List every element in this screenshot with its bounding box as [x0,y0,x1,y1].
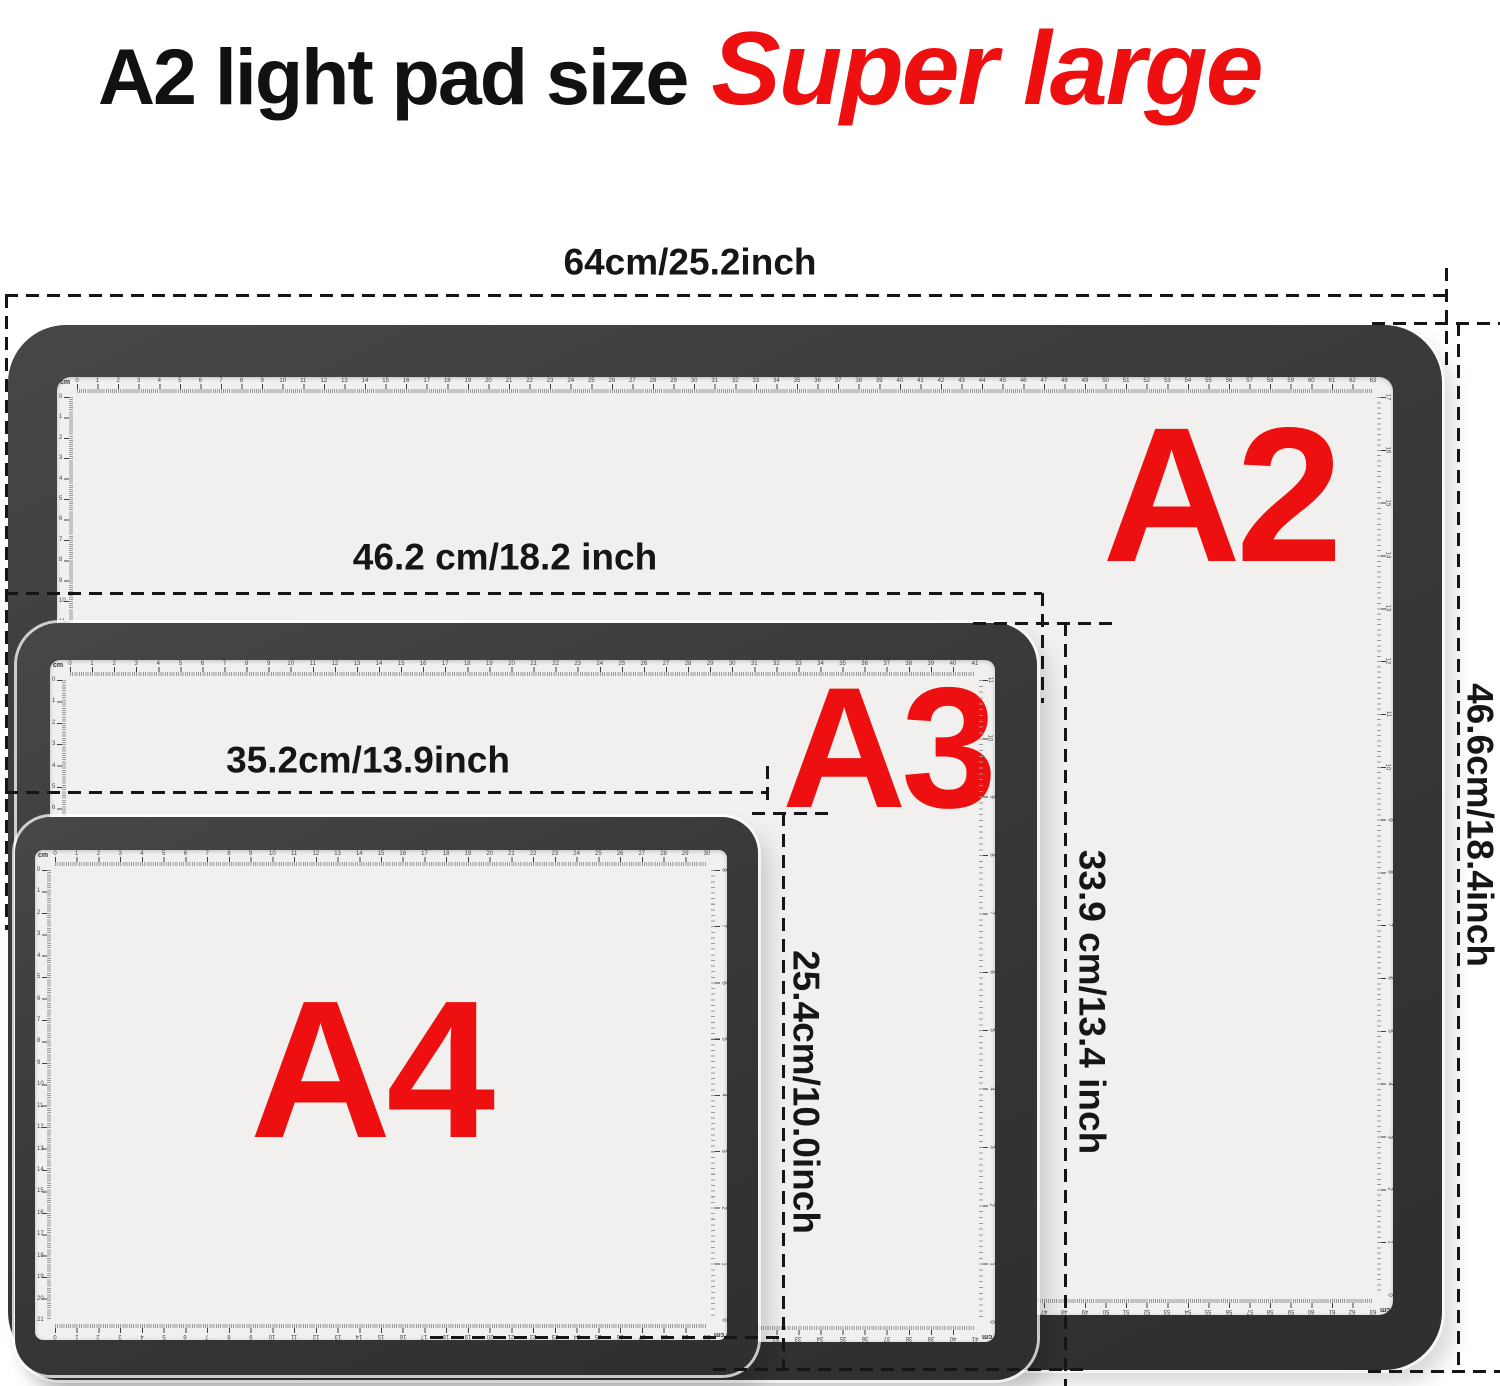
ruler-number: 47 [1041,378,1048,384]
ruler-number: 13 [1385,605,1391,612]
ruler-number: 8 [59,557,62,563]
ruler-number: 16 [420,661,427,667]
ruler-number: 2 [97,851,100,857]
ruler-number: 22 [530,1333,537,1339]
ruler-number: 1 [75,1333,78,1339]
ruler-number: 10 [287,661,294,667]
ruler-number: 7 [988,912,994,915]
ruler-number: 33 [753,378,760,384]
ruler-unit-label: cm [982,1333,992,1340]
ruler-number: 21 [37,1317,44,1323]
ruler-unit-label: cm [714,1331,724,1338]
a4-ruler-right: 876543210 [711,850,727,1340]
ruler-number: 25 [595,1333,602,1339]
ruler-number: 5 [162,1333,165,1339]
ruler-number: 2 [59,435,62,441]
ruler-number: 3 [135,661,138,667]
ruler-number: 0 [53,851,56,857]
ruler-number: 41 [972,1335,979,1341]
ruler-number: 26 [617,851,624,857]
a4-ruler-ticks [55,857,707,866]
ruler-number: 4 [59,476,62,482]
ruler-number: 21 [506,378,513,384]
ruler-number: 6 [720,981,726,984]
ruler-number: 53 [1164,1308,1171,1314]
a4-pad-surface: A4 0123456789101112131415161718192021222… [35,850,727,1340]
ruler-number: 1 [988,1262,994,1265]
ruler-number: 8 [245,661,248,667]
ruler-number: 13 [37,1146,44,1152]
ruler-number: 8 [1386,871,1392,874]
ruler-number: 20 [485,378,492,384]
a3-ruler-ticks [979,680,988,1322]
ruler-number: 19 [465,378,472,384]
ruler-number: 17 [442,661,449,667]
ruler-number: 11 [291,851,297,857]
a4-ruler-bottom: 0123456789101112131415161718192021222324… [35,1324,727,1340]
ruler-number: 1 [1386,1241,1392,1244]
ruler-number: 4 [140,1333,143,1339]
ruler-number: 48 [1061,378,1068,384]
ruler-number: 15 [378,851,385,857]
ruler-number: 7 [720,925,726,928]
a2-ruler-ticks [77,384,1373,393]
ruler-number: 63 [1370,1308,1377,1314]
ruler-number: 13 [334,1333,341,1339]
ruler-number: 2 [97,1333,100,1339]
ruler-number: 37 [883,661,890,667]
ruler-number: 0 [1386,1293,1392,1296]
ruler-number: 28 [650,378,657,384]
ruler-number: 57 [1246,378,1253,384]
ruler-number: 50 [1102,1308,1109,1314]
ruler-number: 60 [1308,1308,1315,1314]
ruler-number: 30 [704,851,711,857]
ruler-number: 39 [928,1335,935,1341]
ruler-number: 45 [999,378,1006,384]
ruler-number: 13 [334,851,341,857]
ruler-number: 34 [773,378,780,384]
dim-tick-a2-right-top [1445,268,1448,370]
ruler-number: 62 [1349,1308,1356,1314]
ruler-number: 44 [979,378,986,384]
ruler-number: 41 [917,378,924,384]
ruler-number: 38 [905,1335,912,1341]
ruler-number: 27 [638,851,645,857]
ruler-number: 20 [508,661,515,667]
ruler-number: 40 [950,1335,957,1341]
ruler-number: 41 [972,661,979,667]
ruler-number: 62 [1349,378,1356,384]
ruler-number: 42 [938,378,945,384]
ruler-number: 10 [37,1081,44,1087]
ruler-number: 9 [267,661,270,667]
ruler-number: 24 [573,851,580,857]
ruler-number: 54 [1185,378,1192,384]
ruler-number: 36 [861,661,868,667]
ruler-number: 10 [279,378,286,384]
ruler-number: 59 [1287,1308,1294,1314]
ruler-number: 7 [37,1017,40,1023]
ruler-number: 20 [486,1333,493,1339]
ruler-number: 35 [839,1335,846,1341]
ruler-number: 12 [321,378,328,384]
ruler-number: 18 [464,661,471,667]
a3-size-label: A3 [782,662,992,834]
ruler-number: 11 [300,378,306,384]
ruler-number: 0 [37,867,40,873]
ruler-number: 19 [486,661,493,667]
ruler-number: 0 [52,677,55,683]
a2-ruler-right: 17161514131211109876543210 [1377,377,1393,1315]
ruler-number: 6 [37,996,40,1002]
ruler-number: 2 [37,910,40,916]
ruler-number: 14 [1385,552,1391,559]
ruler-number: 5 [162,851,165,857]
ruler-number: 10 [59,598,66,604]
ruler-unit-label: cm [53,662,63,669]
ruler-number: 34 [817,661,824,667]
ruler-number: 6 [988,970,994,973]
ruler-number: 21 [508,1333,515,1339]
ruler-number: 54 [1185,1308,1192,1314]
ruler-number: 23 [574,661,581,667]
ruler-number: 11 [1385,711,1391,717]
ruler-number: 24 [573,1333,580,1339]
ruler-number: 15 [1385,499,1391,506]
ruler-number: 5 [988,1029,994,1032]
ruler-number: 18 [443,1333,450,1339]
ruler-number: 17 [421,1333,428,1339]
ruler-number: 8 [227,851,230,857]
ruler-number: 56 [1226,1308,1233,1314]
ruler-number: 51 [1123,1308,1130,1314]
ruler-number: 43 [958,378,965,384]
a3-ruler-right: 11109876543210 [979,660,995,1342]
ruler-unit-label: cm [60,379,70,386]
ruler-number: 25 [588,378,595,384]
ruler-number: 0 [68,661,71,667]
ruler-number: 18 [443,851,450,857]
ruler-number: 35 [839,661,846,667]
ruler-number: 25 [595,851,602,857]
ruler-number: 11 [987,677,993,683]
ruler-number: 6 [184,851,187,857]
ruler-number: 37 [883,1335,890,1341]
ruler-number: 3 [59,455,62,461]
ruler-number: 11 [310,661,316,667]
ruler-number: 30 [729,661,736,667]
ruler-number: 16 [1385,446,1391,453]
ruler-number: 47 [1041,1308,1048,1314]
ruler-number: 15 [382,378,389,384]
ruler-number: 2 [52,720,55,726]
ruler-number: 3 [988,1145,994,1148]
ruler-number: 28 [660,1333,667,1339]
ruler-number: 0 [988,1320,994,1323]
ruler-number: 29 [682,851,689,857]
ruler-number: 30 [704,1333,711,1339]
ruler-number: 11 [291,1333,297,1339]
ruler-number: 0 [53,1333,56,1339]
ruler-number: 22 [552,661,559,667]
ruler-number: 2 [988,1204,994,1207]
ruler-number: 38 [855,378,862,384]
ruler-number: 14 [376,661,383,667]
title-product: A2 light pad size [98,31,687,123]
ruler-number: 12 [37,1124,44,1130]
ruler-number: 63 [1370,378,1377,384]
dim-line-a2-height [1457,323,1460,1371]
ruler-number: 9 [249,1333,252,1339]
ruler-number: 49 [1082,1308,1089,1314]
a4-size-label: A4 [250,972,491,1168]
page-title: A2 light pad size Super large [98,10,1262,129]
ruler-number: 24 [567,378,574,384]
ruler-number: 25 [618,661,625,667]
ruler-number: 46 [1020,378,1027,384]
ruler-number: 3 [37,931,40,937]
ruler-number: 33 [795,1335,802,1341]
ruler-number: 60 [1308,378,1315,384]
ruler-number: 8 [720,868,726,871]
a2-ruler-top: 0123456789101112131415161718192021222324… [57,377,1393,393]
ruler-number: 8 [988,853,994,856]
ruler-number: 27 [638,1333,645,1339]
ruler-number: 10 [269,851,276,857]
ruler-number: 3 [1386,1135,1392,1138]
ruler-number: 5 [52,784,55,790]
ruler-number: 14 [356,851,363,857]
ruler-number: 6 [52,805,55,811]
ruler-number: 39 [876,378,883,384]
ruler-number: 10 [1385,763,1391,770]
ruler-number: 38 [905,661,912,667]
ruler-number: 34 [817,1335,824,1341]
ruler-number: 10 [987,735,993,742]
ruler-number: 9 [59,578,62,584]
ruler-number: 8 [227,1333,230,1339]
ruler-number: 10 [269,1333,276,1339]
ruler-number: 15 [37,1188,44,1194]
ruler-number: 4 [37,953,40,959]
ruler-number: 49 [1082,378,1089,384]
ruler-number: 19 [465,1333,472,1339]
ruler-number: 26 [617,1333,624,1339]
ruler-number: 58 [1267,378,1274,384]
ruler-number: 55 [1205,1308,1212,1314]
ruler-number: 4 [158,378,161,384]
ruler-number: 57 [1246,1308,1253,1314]
ruler-number: 7 [219,378,222,384]
ruler-number: 56 [1226,378,1233,384]
a4-ruler-top: 0123456789101112131415161718192021222324… [35,850,727,866]
ruler-number: 22 [526,378,533,384]
ruler-number: 50 [1102,378,1109,384]
ruler-number: 9 [37,1060,40,1066]
ruler-number: 9 [249,851,252,857]
a4-ruler-ticks [711,870,720,1320]
ruler-number: 37 [835,378,842,384]
ruler-number: 3 [52,741,55,747]
dim-tick-a2-bottom-right [1368,1370,1500,1373]
ruler-number: 7 [59,537,62,543]
a3-ruler-top: 0123456789101112131415161718192021222324… [50,660,995,676]
ruler-number: 19 [465,851,472,857]
ruler-number: 26 [609,378,616,384]
ruler-number: 2 [112,661,115,667]
ruler-number: 29 [682,1333,689,1339]
ruler-number: 12 [312,1333,319,1339]
ruler-number: 32 [773,1335,780,1341]
title-highlight: Super large [711,10,1261,129]
ruler-number: 16 [37,1210,44,1216]
ruler-number: 17 [37,1231,44,1237]
ruler-number: 5 [179,661,182,667]
ruler-number: 3 [119,1333,122,1339]
ruler-number: 6 [184,1333,187,1339]
ruler-number: 31 [711,378,718,384]
ruler-number: 6 [201,661,204,667]
ruler-number: 15 [398,661,405,667]
ruler-number: 5 [178,378,181,384]
ruler-number: 23 [552,851,559,857]
ruler-number: 58 [1267,1308,1274,1314]
ruler-number: 23 [547,378,554,384]
dim-line-a2-width [5,294,1446,297]
ruler-number: 36 [814,378,821,384]
ruler-number: 4 [140,851,143,857]
ruler-number: 12 [332,661,339,667]
ruler-number: 13 [354,661,361,667]
ruler-number: 15 [378,1333,385,1339]
a2-size-label: A2 [1102,399,1337,591]
ruler-number: 6 [199,378,202,384]
a3-ruler-ticks [70,667,975,676]
ruler-number: 31 [751,661,758,667]
ruler-number: 61 [1329,1308,1336,1314]
ruler-number: 32 [732,378,739,384]
ruler-number: 29 [707,661,714,667]
ruler-number: 21 [530,661,537,667]
ruler-number: 53 [1164,378,1171,384]
ruler-number: 27 [629,378,636,384]
ruler-number: 1 [59,414,62,420]
ruler-number: 6 [59,516,62,522]
ruler-number: 2 [720,1206,726,1209]
ruler-number: 1 [90,661,93,667]
ruler-number: 22 [530,851,537,857]
ruler-number: 0 [75,378,78,384]
ruler-number: 6 [1386,976,1392,979]
ruler-number: 1 [37,888,40,894]
ruler-number: 9 [1386,818,1392,821]
a4-ruler-left: 0123456789101112131415161718192021 [35,850,51,1340]
ruler-number: 8 [240,378,243,384]
ruler-unit-label: cm [1380,1306,1390,1313]
ruler-number: 5 [1386,1029,1392,1032]
ruler-number: 36 [861,1335,868,1341]
ruler-number: 18 [444,378,451,384]
ruler-number: 7 [205,851,208,857]
ruler-number: 16 [403,378,410,384]
ruler-number: 20 [486,851,493,857]
product-size-diagram: A2 light pad size Super large A2 0123456… [0,0,1500,1386]
ruler-number: 30 [691,378,698,384]
ruler-number: 26 [641,661,648,667]
ruler-number: 0 [720,1318,726,1321]
ruler-number: 23 [552,1333,559,1339]
ruler-number: 4 [988,1087,994,1090]
a2-ruler-ticks [1377,397,1386,1295]
ruler-number: 3 [119,851,122,857]
ruler-number: 9 [988,795,994,798]
dim-label-a2-height: 46.6cm/18.4inch [1462,683,1499,967]
ruler-number: 20 [37,1296,44,1302]
ruler-number: 28 [660,851,667,857]
ruler-number: 17 [1385,394,1391,401]
ruler-number: 17 [421,851,428,857]
ruler-number: 5 [59,496,62,502]
ruler-number: 3 [137,378,140,384]
ruler-number: 7 [1386,924,1392,927]
ruler-number: 27 [663,661,670,667]
ruler-number: 5 [37,974,40,980]
ruler-number: 16 [399,851,406,857]
ruler-number: 52 [1143,378,1150,384]
ruler-number: 4 [720,1093,726,1096]
ruler-number: 51 [1123,378,1130,384]
a4-pad: A4 0123456789101112131415161718192021222… [15,817,758,1375]
ruler-number: 48 [1061,1308,1068,1314]
ruler-number: 11 [37,1103,43,1109]
ruler-number: 12 [312,851,319,857]
ruler-number: 1 [52,698,55,704]
ruler-number: 61 [1329,378,1336,384]
ruler-number: 28 [685,661,692,667]
ruler-number: 40 [950,661,957,667]
ruler-number: 13 [341,378,348,384]
ruler-number: 40 [897,378,904,384]
ruler-number: 14 [356,1333,363,1339]
ruler-number: 33 [795,661,802,667]
ruler-number: 14 [37,1167,44,1173]
ruler-number: 1 [96,378,99,384]
a4-ruler-ticks [55,1324,707,1333]
ruler-unit-label: cm [38,852,48,859]
ruler-number: 35 [794,378,801,384]
ruler-number: 24 [596,661,603,667]
ruler-number: 5 [720,1037,726,1040]
ruler-number: 8 [37,1038,40,1044]
ruler-number: 1 [75,851,78,857]
dim-label-a2-width: 64cm/25.2inch [564,244,817,281]
ruler-number: 9 [260,378,263,384]
ruler-number: 12 [1385,658,1391,665]
ruler-number: 19 [37,1274,44,1280]
ruler-number: 14 [362,378,369,384]
ruler-number: 7 [223,661,226,667]
ruler-number: 55 [1205,378,1212,384]
ruler-number: 32 [773,661,780,667]
ruler-number: 16 [399,1333,406,1339]
ruler-number: 4 [157,661,160,667]
ruler-number: 3 [720,1150,726,1153]
ruler-number: 18 [37,1253,44,1259]
ruler-number: 52 [1143,1308,1150,1314]
ruler-number: 2 [116,378,119,384]
ruler-number: 59 [1287,378,1294,384]
